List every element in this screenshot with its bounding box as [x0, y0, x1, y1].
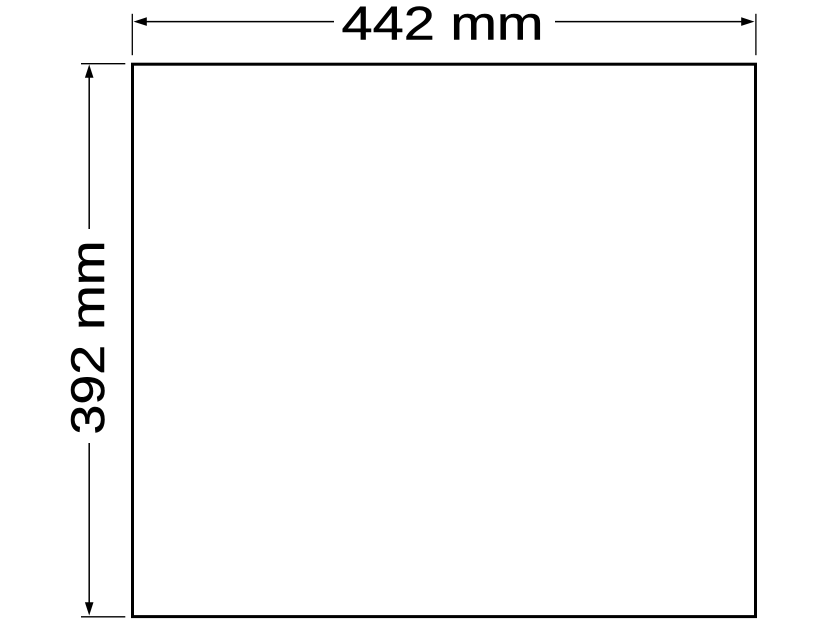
- svg-text:392 mm: 392 mm: [62, 241, 115, 435]
- svg-text:442 mm: 442 mm: [342, 0, 544, 51]
